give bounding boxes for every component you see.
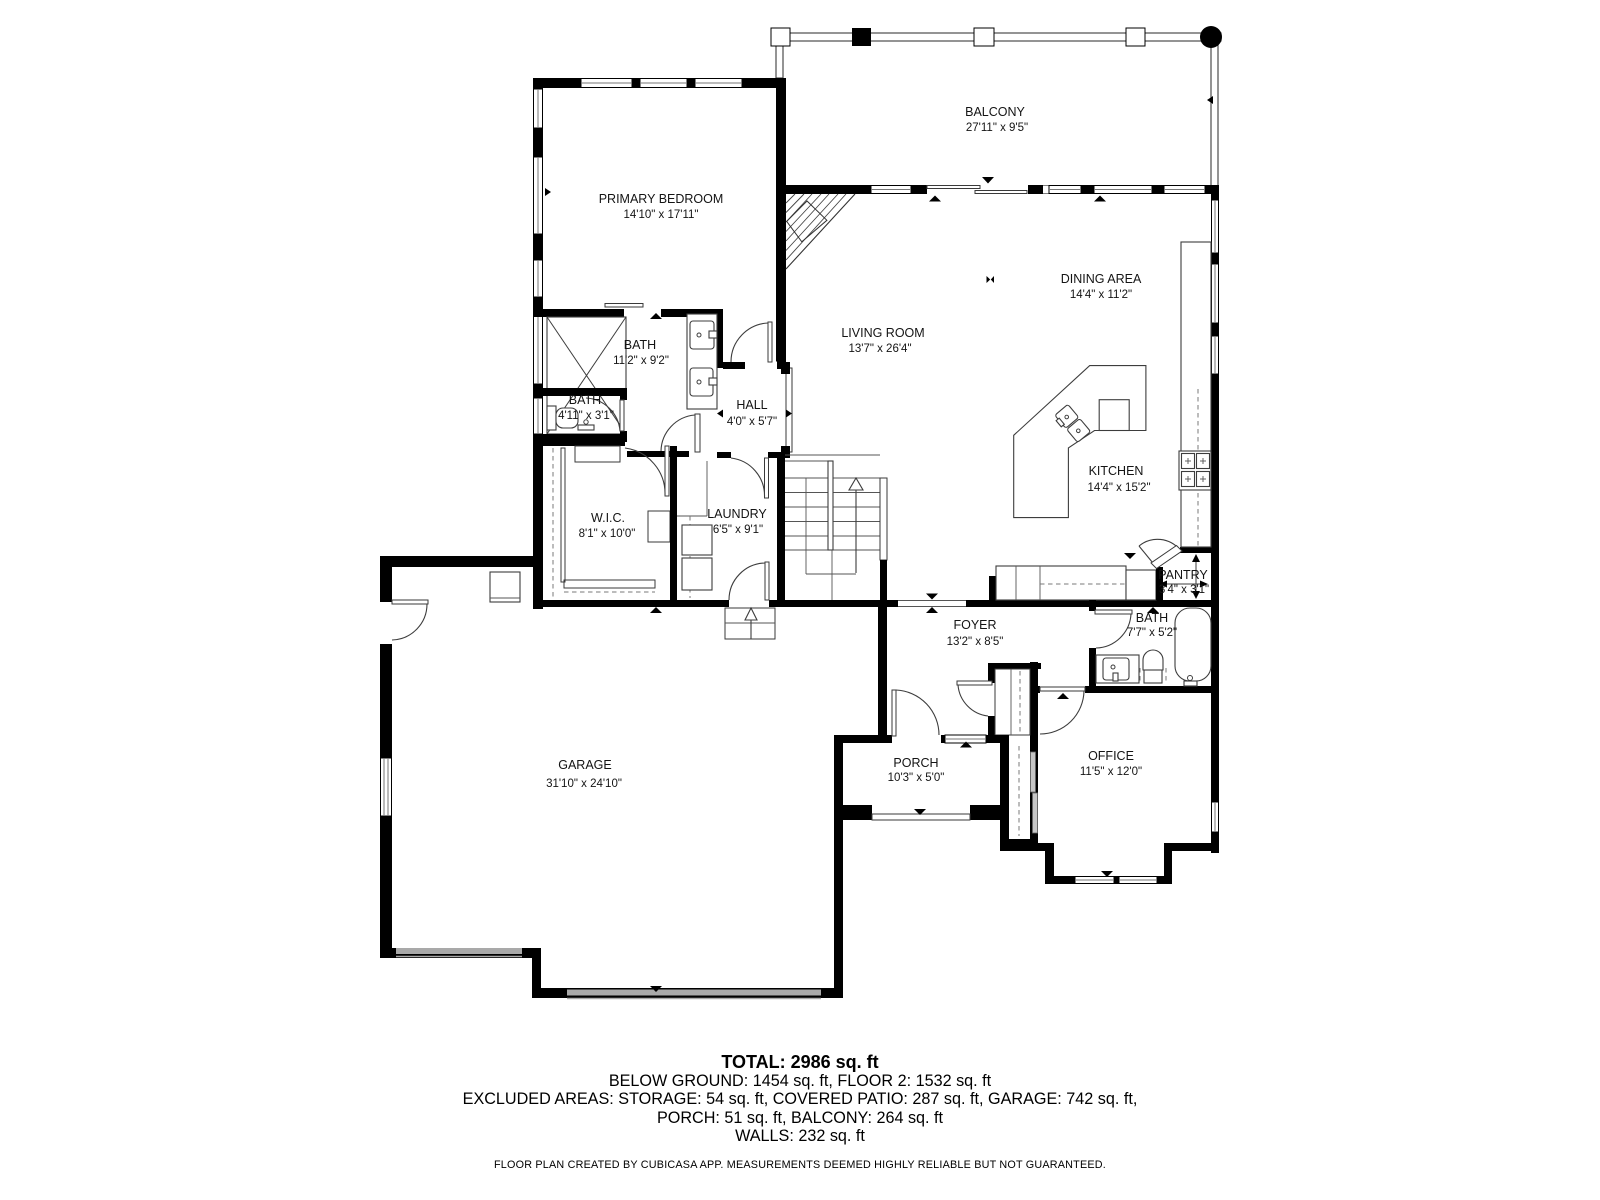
svg-text:14'4" x 15'2": 14'4" x 15'2" bbox=[1087, 482, 1150, 494]
svg-text:PORCH: 51 sq. ft, BALCONY: 264: PORCH: 51 sq. ft, BALCONY: 264 sq. ft bbox=[657, 1109, 944, 1127]
svg-text:W.I.C.: W.I.C. bbox=[591, 511, 625, 525]
svg-text:4'11" x 3'1": 4'11" x 3'1" bbox=[558, 410, 614, 422]
svg-text:BATH: BATH bbox=[624, 338, 656, 352]
svg-text:BELOW GROUND: 1454 sq. ft, FLO: BELOW GROUND: 1454 sq. ft, FLOOR 2: 1532… bbox=[609, 1072, 992, 1090]
svg-text:BATH: BATH bbox=[1136, 611, 1168, 625]
svg-text:14'10" x 17'11": 14'10" x 17'11" bbox=[623, 209, 698, 221]
svg-text:8'1" x 10'0": 8'1" x 10'0" bbox=[579, 528, 636, 540]
svg-text:13'2" x 8'5": 13'2" x 8'5" bbox=[947, 636, 1004, 648]
svg-text:13'7" x 26'4": 13'7" x 26'4" bbox=[848, 343, 911, 355]
svg-text:PORCH: PORCH bbox=[893, 756, 938, 770]
svg-text:EXCLUDED AREAS: STORAGE: 54 sq: EXCLUDED AREAS: STORAGE: 54 sq. ft, COVE… bbox=[463, 1090, 1138, 1108]
svg-text:BALCONY: BALCONY bbox=[965, 105, 1025, 119]
svg-text:WALLS: 232 sq. ft: WALLS: 232 sq. ft bbox=[735, 1127, 865, 1145]
svg-text:OFFICE: OFFICE bbox=[1088, 749, 1134, 763]
svg-text:FLOOR PLAN CREATED BY CUBICASA: FLOOR PLAN CREATED BY CUBICASA APP. MEAS… bbox=[494, 1159, 1106, 1171]
svg-text:11'2" x 9'2": 11'2" x 9'2" bbox=[613, 355, 669, 367]
svg-text:LAUNDRY: LAUNDRY bbox=[707, 507, 767, 521]
svg-text:HALL: HALL bbox=[736, 398, 767, 412]
svg-text:KITCHEN: KITCHEN bbox=[1089, 464, 1144, 478]
svg-text:3'4" x 3'1": 3'4" x 3'1" bbox=[1159, 584, 1209, 596]
svg-text:DINING AREA: DINING AREA bbox=[1061, 272, 1142, 286]
svg-text:11'5" x 12'0": 11'5" x 12'0" bbox=[1080, 766, 1142, 778]
svg-text:6'5" x 9'1": 6'5" x 9'1" bbox=[713, 524, 763, 536]
svg-text:7'7" x 5'2": 7'7" x 5'2" bbox=[1127, 627, 1177, 639]
svg-text:27'11" x 9'5": 27'11" x 9'5" bbox=[966, 122, 1028, 134]
svg-text:FOYER: FOYER bbox=[953, 618, 996, 632]
svg-text:PANTRY: PANTRY bbox=[1158, 568, 1208, 582]
svg-text:PRIMARY BEDROOM: PRIMARY BEDROOM bbox=[599, 192, 724, 206]
svg-text:LIVING ROOM: LIVING ROOM bbox=[841, 326, 924, 340]
svg-text:4'0" x 5'7": 4'0" x 5'7" bbox=[727, 416, 777, 428]
svg-text:10'3" x 5'0": 10'3" x 5'0" bbox=[888, 772, 945, 784]
svg-text:GARAGE: GARAGE bbox=[558, 758, 612, 772]
svg-text:TOTAL: 2986 sq. ft: TOTAL: 2986 sq. ft bbox=[721, 1052, 878, 1072]
svg-text:BATH: BATH bbox=[569, 393, 601, 407]
svg-text:14'4" x 11'2": 14'4" x 11'2" bbox=[1070, 289, 1132, 301]
svg-text:31'10" x 24'10": 31'10" x 24'10" bbox=[546, 778, 622, 790]
